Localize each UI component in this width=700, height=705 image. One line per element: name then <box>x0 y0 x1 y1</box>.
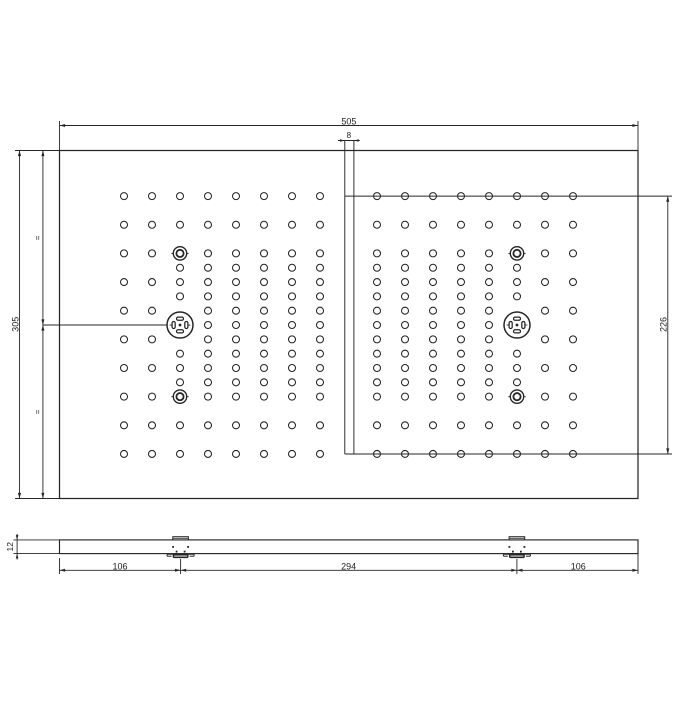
svg-text:305: 305 <box>10 317 20 332</box>
svg-text:505: 505 <box>341 116 356 126</box>
svg-text:226: 226 <box>658 317 668 332</box>
svg-text:=: = <box>34 235 43 240</box>
svg-text:12: 12 <box>5 542 15 552</box>
svg-text:106: 106 <box>112 561 127 571</box>
svg-text:106: 106 <box>571 561 586 571</box>
svg-text:8: 8 <box>347 131 352 140</box>
svg-text:294: 294 <box>341 561 356 571</box>
svg-text:=: = <box>34 409 43 414</box>
